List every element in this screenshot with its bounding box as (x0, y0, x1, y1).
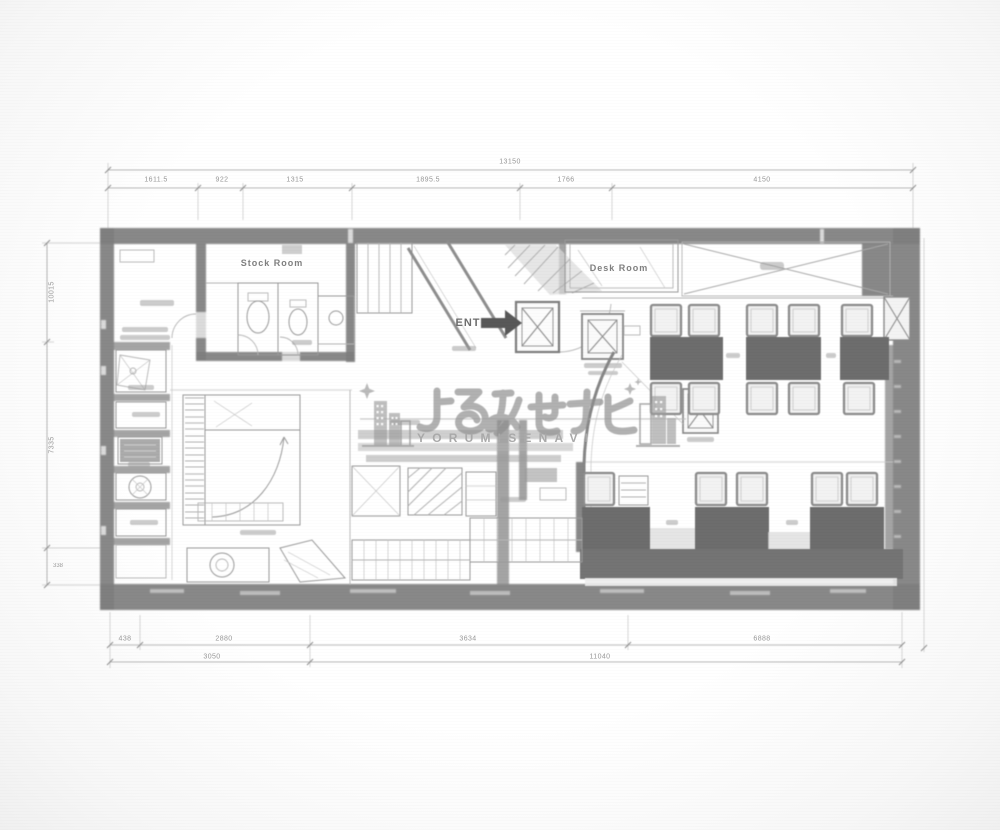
floorplan-page: Stock Room Desk Room ENT 13150 1611.5 92… (0, 0, 1000, 830)
dim-label-left-2: 338 (53, 563, 63, 569)
dim-label-top-4: 1766 (557, 177, 574, 184)
stock-room-label: Stock Room (241, 258, 304, 268)
stairs (170, 390, 352, 585)
dim-label-bottom1-1: 2880 (215, 636, 232, 643)
dim-label-bottom1-3: 6888 (753, 636, 770, 643)
dim-label-bottom1-0: 438 (119, 636, 132, 643)
dim-label-bottom2-1: 11040 (590, 654, 611, 661)
dim-label-top-3: 1895.5 (416, 177, 440, 184)
banquette-bench (580, 549, 903, 586)
table-group (582, 473, 650, 553)
dim-label-top-1: 922 (216, 177, 229, 184)
table-group (840, 305, 889, 414)
elevator-icon (884, 297, 910, 340)
dim-label-top-2: 1315 (286, 177, 303, 184)
elevator-icon (580, 311, 640, 375)
dim-label-top-0: 1611.5 (144, 177, 167, 184)
watermark-subtitle: YORUMISENAVI (417, 431, 595, 445)
table-group (746, 305, 821, 414)
dim-label-top-overall: 13150 (499, 159, 520, 166)
floorplan-drawing (0, 0, 1000, 830)
desk-room-label: Desk Room (590, 263, 649, 273)
dim-label-left-1: 7335 (49, 436, 56, 453)
entrance-area (357, 241, 611, 352)
dining-area (580, 305, 903, 586)
dim-label-bottom1-2: 3634 (459, 636, 476, 643)
table-group (695, 473, 769, 553)
entrance-mat (516, 302, 559, 352)
dim-label-bottom2-0: 3050 (203, 654, 220, 661)
dim-label-left-0: 10015 (49, 281, 56, 302)
table-group (810, 473, 884, 553)
dim-label-top-5: 4150 (753, 177, 770, 184)
entrance-label: ENT (456, 317, 481, 329)
